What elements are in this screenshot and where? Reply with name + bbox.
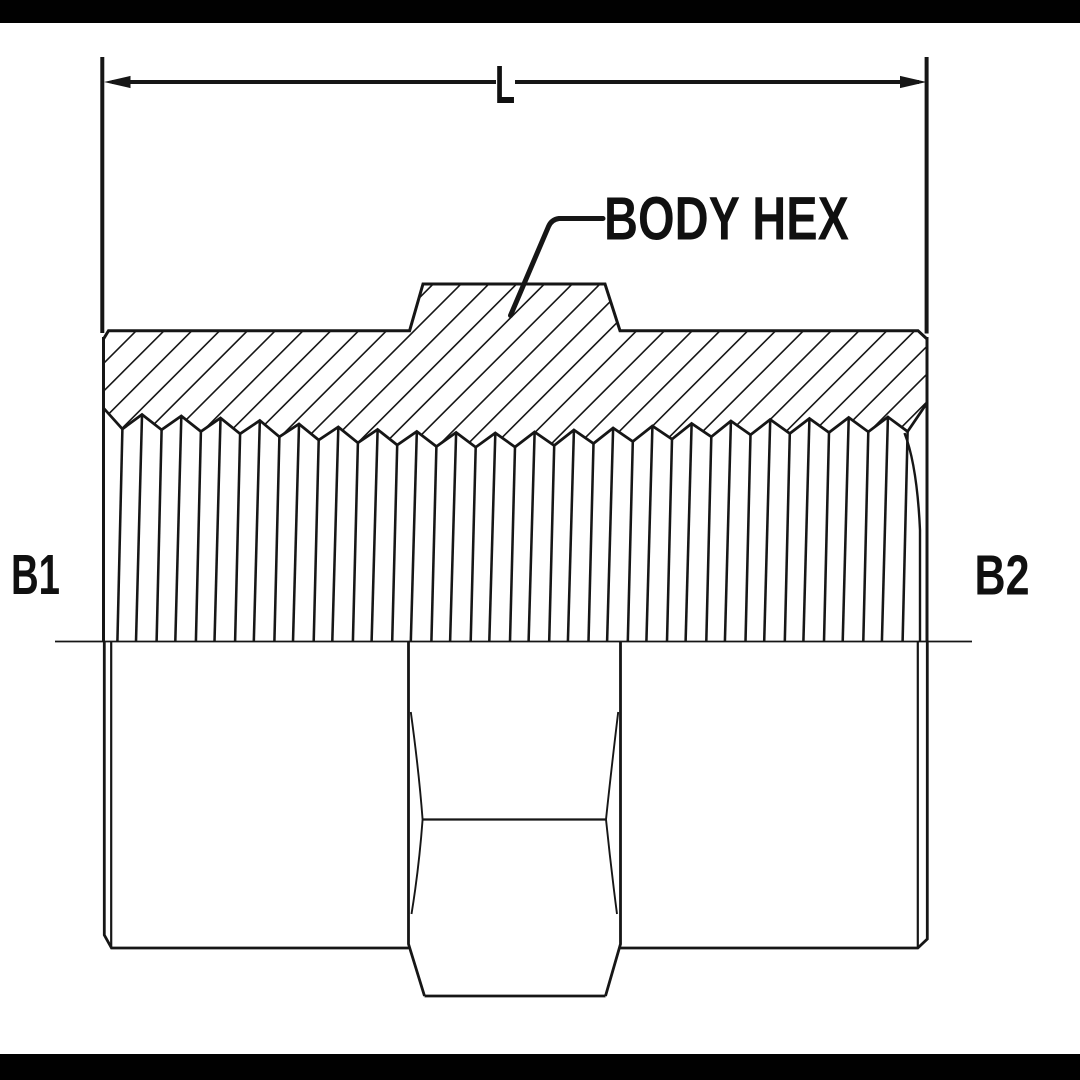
svg-text:L: L: [495, 55, 515, 115]
svg-text:BODY HEX: BODY HEX: [604, 185, 849, 253]
svg-text:B1: B1: [11, 543, 60, 606]
svg-text:B2: B2: [975, 544, 1030, 607]
